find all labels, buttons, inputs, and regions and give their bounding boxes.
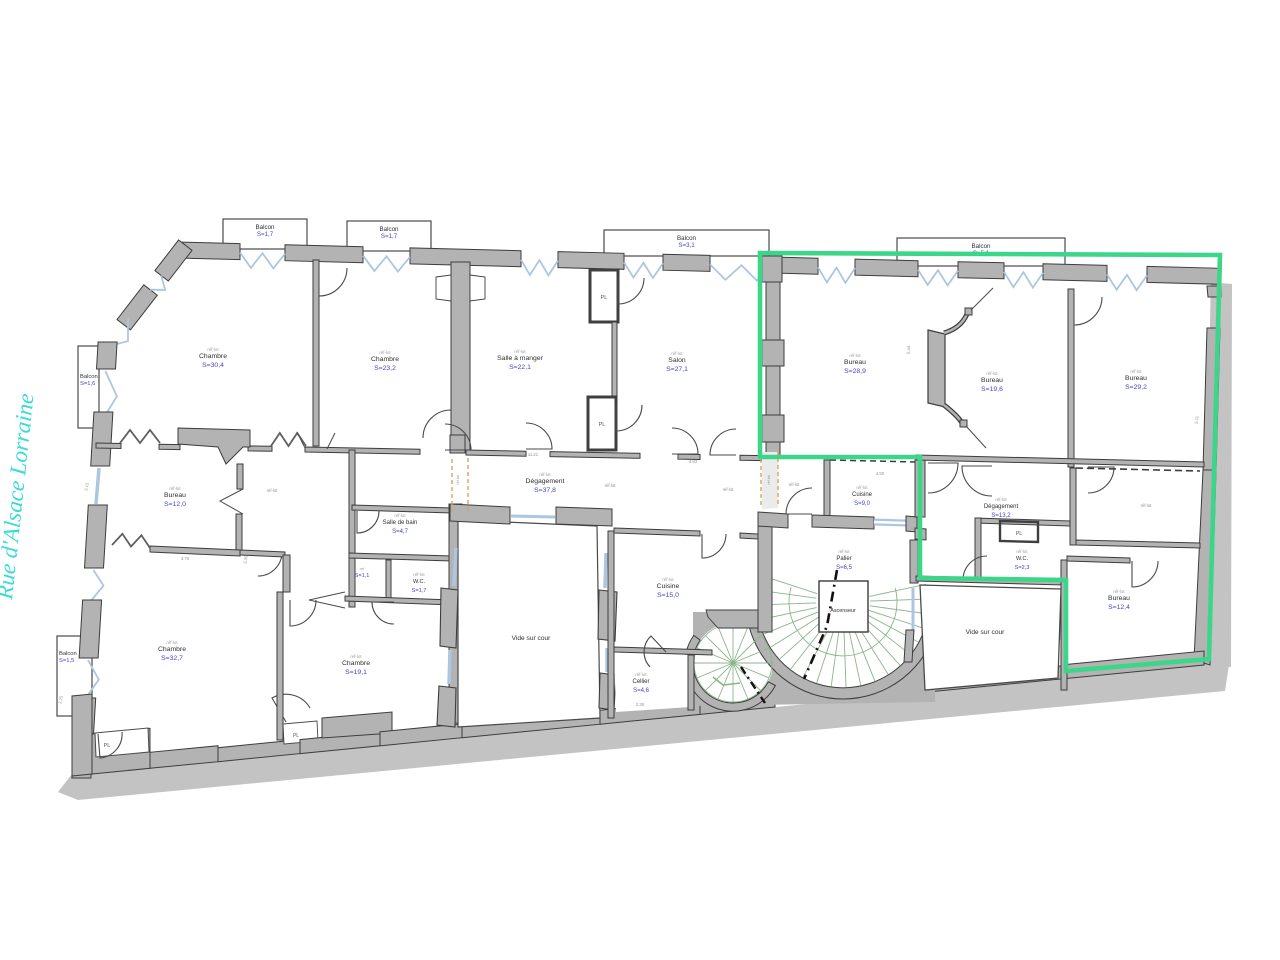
svg-text:Dégagement: Dégagement bbox=[526, 478, 565, 485]
svg-text:Chambre: Chambre bbox=[371, 356, 399, 363]
svg-text:réf-lot: réf-lot bbox=[166, 640, 178, 645]
svg-text:Cellier: Cellier bbox=[632, 679, 649, 685]
svg-text:réf-lot: réf-lot bbox=[379, 350, 391, 355]
svg-text:Bureau: Bureau bbox=[1125, 375, 1147, 382]
svg-text:Bureau: Bureau bbox=[844, 359, 866, 366]
svg-text:Cuisine: Cuisine bbox=[657, 583, 680, 590]
svg-text:Palier: Palier bbox=[836, 556, 851, 562]
svg-text:S=1,5: S=1,5 bbox=[59, 658, 74, 664]
svg-text:S=1,7: S=1,7 bbox=[381, 233, 398, 240]
svg-text:W.C.: W.C. bbox=[413, 579, 426, 585]
svg-text:Salle à manger: Salle à manger bbox=[497, 355, 543, 362]
svg-text:5.11: 5.11 bbox=[1194, 415, 1200, 424]
svg-text:S=15,0: S=15,0 bbox=[657, 592, 679, 599]
svg-text:réf-lot: réf-lot bbox=[767, 475, 771, 484]
svg-text:PL: PL bbox=[1016, 531, 1022, 537]
svg-text:4.83: 4.83 bbox=[689, 459, 698, 464]
svg-text:réf-lot: réf-lot bbox=[267, 488, 279, 493]
svg-text:réf-lot: réf-lot bbox=[986, 371, 998, 376]
svg-text:S=30,4: S=30,4 bbox=[202, 362, 224, 369]
svg-text:Bureau: Bureau bbox=[981, 377, 1003, 384]
svg-text:PL: PL bbox=[104, 743, 111, 749]
svg-text:S=27,1: S=27,1 bbox=[666, 366, 688, 373]
svg-text:réf-lot: réf-lot bbox=[838, 549, 850, 554]
svg-text:S=12,0: S=12,0 bbox=[164, 501, 186, 508]
svg-text:réf-lot: réf-lot bbox=[1016, 549, 1028, 554]
svg-text:Salle de bain: Salle de bain bbox=[383, 520, 418, 526]
svg-text:5.44: 5.44 bbox=[906, 345, 912, 354]
svg-text:réf-lot: réf-lot bbox=[394, 513, 406, 518]
svg-text:Salon: Salon bbox=[668, 357, 686, 364]
svg-text:réf-lot: réf-lot bbox=[1130, 369, 1142, 374]
svg-text:réf-lot: réf-lot bbox=[1141, 503, 1153, 508]
svg-text:S=28,9: S=28,9 bbox=[844, 368, 866, 375]
svg-text:réf-lot: réf-lot bbox=[413, 572, 425, 577]
svg-text:réf-lot: réf-lot bbox=[662, 577, 674, 582]
svg-text:réf-lot: réf-lot bbox=[456, 475, 460, 484]
svg-text:S=19,6: S=19,6 bbox=[981, 386, 1003, 393]
svg-text:Balcon: Balcon bbox=[256, 224, 275, 231]
svg-text:S=22,1: S=22,1 bbox=[509, 364, 531, 371]
svg-text:S=9,0: S=9,0 bbox=[854, 501, 871, 507]
svg-text:réf-lot: réf-lot bbox=[169, 486, 181, 491]
svg-text:S=4,6: S=4,6 bbox=[633, 688, 650, 694]
svg-text:Balcon: Balcon bbox=[677, 235, 696, 242]
svg-text:Vide sur cour: Vide sur cour bbox=[966, 629, 1006, 636]
svg-text:réf-lot: réf-lot bbox=[723, 487, 735, 492]
svg-text:S=19,1: S=19,1 bbox=[345, 669, 367, 676]
svg-text:Balcon: Balcon bbox=[80, 374, 98, 380]
svg-text:Chambre: Chambre bbox=[158, 646, 186, 653]
svg-text:réf-lot: réf-lot bbox=[350, 654, 362, 659]
svg-text:réf-lot: réf-lot bbox=[207, 347, 219, 352]
svg-text:réf-lot: réf-lot bbox=[849, 353, 861, 358]
svg-text:S=29,2: S=29,2 bbox=[1125, 384, 1147, 391]
svg-text:S=1,7: S=1,7 bbox=[257, 231, 274, 238]
svg-text:Chambre: Chambre bbox=[342, 660, 370, 667]
svg-text:PL: PL bbox=[601, 295, 608, 301]
svg-text:Balcon: Balcon bbox=[972, 243, 991, 250]
svg-text:PL: PL bbox=[599, 422, 606, 428]
svg-text:Vide sur cour: Vide sur cour bbox=[512, 635, 552, 642]
svg-text:réf-lot: réf-lot bbox=[671, 351, 683, 356]
svg-text:S=1,6: S=1,6 bbox=[80, 381, 95, 387]
svg-text:S=12,4: S=12,4 bbox=[1108, 604, 1130, 611]
svg-text:S=2,3: S=2,3 bbox=[1015, 565, 1030, 571]
svg-text:S=6,5: S=6,5 bbox=[836, 565, 853, 571]
svg-text:réf-lot: réf-lot bbox=[514, 349, 526, 354]
svg-text:réf-lot: réf-lot bbox=[789, 482, 801, 487]
svg-text:S=1,1: S=1,1 bbox=[355, 573, 370, 579]
svg-text:réf-lot: réf-lot bbox=[635, 672, 647, 677]
svg-text:S=3,1: S=3,1 bbox=[678, 242, 695, 249]
svg-text:2.30: 2.30 bbox=[636, 702, 645, 707]
svg-text:Cuisine: Cuisine bbox=[852, 492, 873, 498]
svg-text:réf-lot: réf-lot bbox=[539, 472, 551, 477]
svg-text:S=1,7: S=1,7 bbox=[412, 588, 427, 594]
svg-text:Bureau: Bureau bbox=[164, 492, 186, 499]
svg-text:Bureau: Bureau bbox=[1108, 595, 1130, 602]
svg-text:Ascenseur: Ascenseur bbox=[830, 608, 856, 614]
svg-text:réf-lot: réf-lot bbox=[856, 485, 868, 490]
svg-text:11.21: 11.21 bbox=[528, 452, 539, 457]
svg-text:réf-lot: réf-lot bbox=[995, 497, 1007, 502]
svg-text:réf-lot: réf-lot bbox=[605, 483, 617, 488]
svg-text:S=23,2: S=23,2 bbox=[374, 365, 396, 372]
svg-text:Dégagement: Dégagement bbox=[984, 504, 1019, 510]
svg-text:W.C.: W.C. bbox=[1016, 556, 1029, 562]
svg-text:Chambre: Chambre bbox=[199, 353, 227, 360]
svg-text:S=13,2: S=13,2 bbox=[991, 513, 1011, 519]
svg-text:réf-lot: réf-lot bbox=[1113, 589, 1125, 594]
svg-text:PL: PL bbox=[293, 733, 299, 739]
svg-text:Balcon: Balcon bbox=[380, 226, 399, 233]
svg-text:Balcon: Balcon bbox=[59, 651, 77, 657]
svg-text:S=37,8: S=37,8 bbox=[534, 487, 556, 494]
svg-text:S=4,7: S=4,7 bbox=[392, 529, 409, 535]
svg-text:4.50: 4.50 bbox=[876, 471, 885, 476]
svg-text:S=32,7: S=32,7 bbox=[161, 655, 183, 662]
svg-text:3.70: 3.70 bbox=[181, 556, 190, 561]
